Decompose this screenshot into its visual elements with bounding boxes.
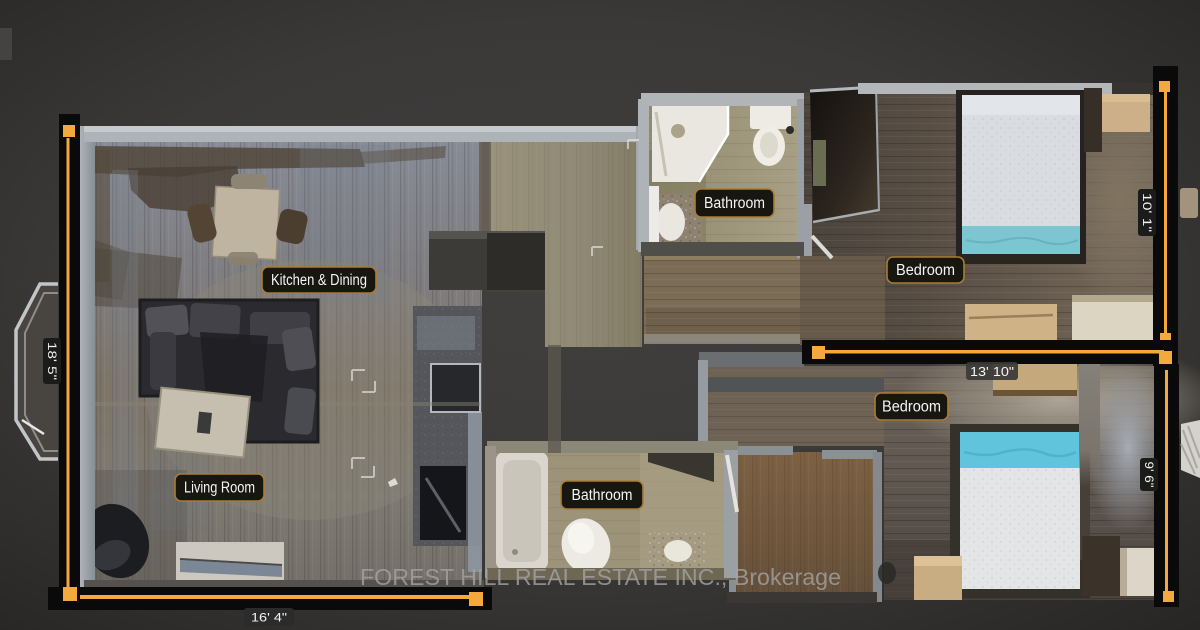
- svg-text:Bathroom: Bathroom: [704, 195, 765, 212]
- svg-text:Living Room: Living Room: [184, 480, 255, 497]
- svg-text:10' 1": 10' 1": [1140, 193, 1154, 232]
- svg-text:FOREST HILL REAL ESTATE INC.,: FOREST HILL REAL ESTATE INC., Brokerage: [360, 564, 841, 590]
- svg-text:Bathroom: Bathroom: [572, 487, 633, 504]
- svg-text:Kitchen & Dining: Kitchen & Dining: [271, 272, 367, 289]
- svg-text:16' 4": 16' 4": [251, 611, 287, 625]
- svg-text:18' 5": 18' 5": [45, 342, 59, 380]
- svg-text:13' 10": 13' 10": [970, 365, 1014, 379]
- svg-text:9' 6": 9' 6": [1142, 462, 1156, 488]
- svg-text:Bedroom: Bedroom: [882, 399, 941, 416]
- svg-text:Bedroom: Bedroom: [896, 262, 955, 279]
